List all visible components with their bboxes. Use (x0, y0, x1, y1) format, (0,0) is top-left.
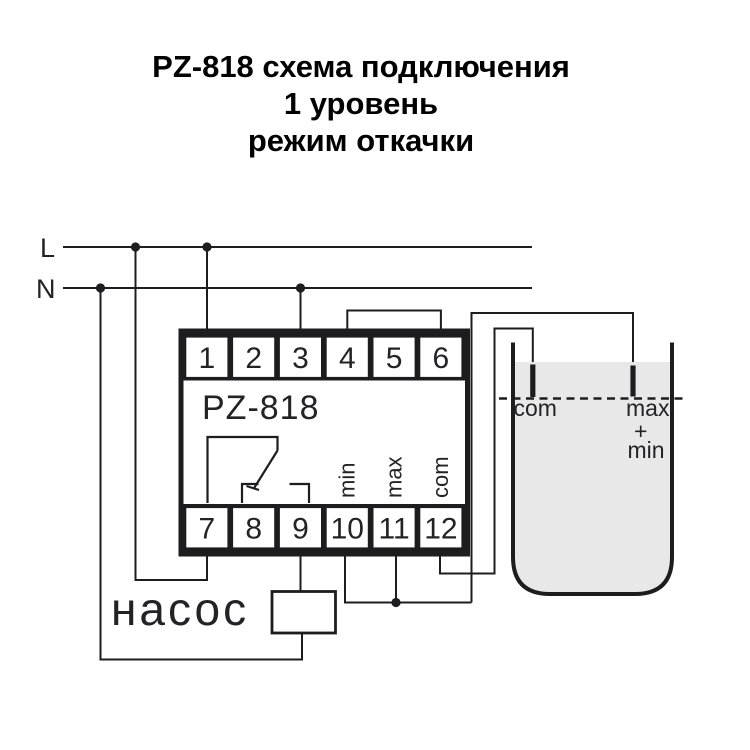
terminal-7: 7 (185, 507, 228, 549)
electrode-com (530, 365, 535, 398)
junction-dot-l2 (202, 242, 211, 251)
terminal-8: 8 (232, 507, 275, 549)
function-label-max: max (382, 456, 407, 498)
svg-text:11: 11 (379, 513, 410, 546)
electrode-com-label: com (514, 395, 557, 421)
function-label-com: com (428, 456, 453, 498)
terminal-4: 4 (326, 337, 369, 379)
svg-text:3: 3 (292, 342, 309, 375)
l-line-label: L (40, 233, 55, 263)
terminal-1: 1 (185, 337, 228, 379)
electrode-min-label: min (628, 437, 665, 463)
terminal-10: 10 (326, 507, 369, 549)
svg-text:8: 8 (245, 513, 262, 546)
wiring-diagram-page: PZ-818 схема подключения 1 уровень режим… (0, 0, 750, 750)
svg-text:6: 6 (433, 342, 450, 375)
wire-t10-bus (345, 553, 472, 603)
function-label-min: min (335, 463, 360, 498)
terminal-11: 11 (372, 507, 415, 549)
terminal-3: 3 (279, 337, 322, 379)
terminal-12: 12 (419, 507, 462, 549)
pump-label: насос (111, 583, 249, 635)
svg-text:4: 4 (339, 342, 356, 375)
svg-text:2: 2 (245, 342, 262, 375)
device-model-label: PZ-818 (202, 389, 320, 427)
svg-text:7: 7 (199, 513, 216, 546)
svg-text:10: 10 (331, 513, 364, 546)
n-line-label: N (36, 274, 56, 304)
svg-text:9: 9 (292, 513, 309, 546)
terminal-2: 2 (232, 337, 275, 379)
junction-dot-l1 (131, 242, 140, 251)
electrode-max-min (630, 366, 635, 397)
pump-box (272, 592, 336, 634)
terminal-5: 5 (372, 337, 415, 379)
terminal-9: 9 (279, 507, 322, 549)
junction-dot-n2 (296, 283, 305, 292)
junction-dot-min-max-bus (391, 598, 400, 607)
svg-text:5: 5 (386, 342, 403, 375)
svg-text:12: 12 (424, 513, 457, 546)
electrode-max-label: max (626, 395, 670, 421)
schematic: L N 1 2 (0, 0, 750, 750)
svg-text:1: 1 (199, 342, 216, 375)
terminal-6: 6 (419, 337, 462, 379)
junction-dot-n1 (96, 283, 105, 292)
